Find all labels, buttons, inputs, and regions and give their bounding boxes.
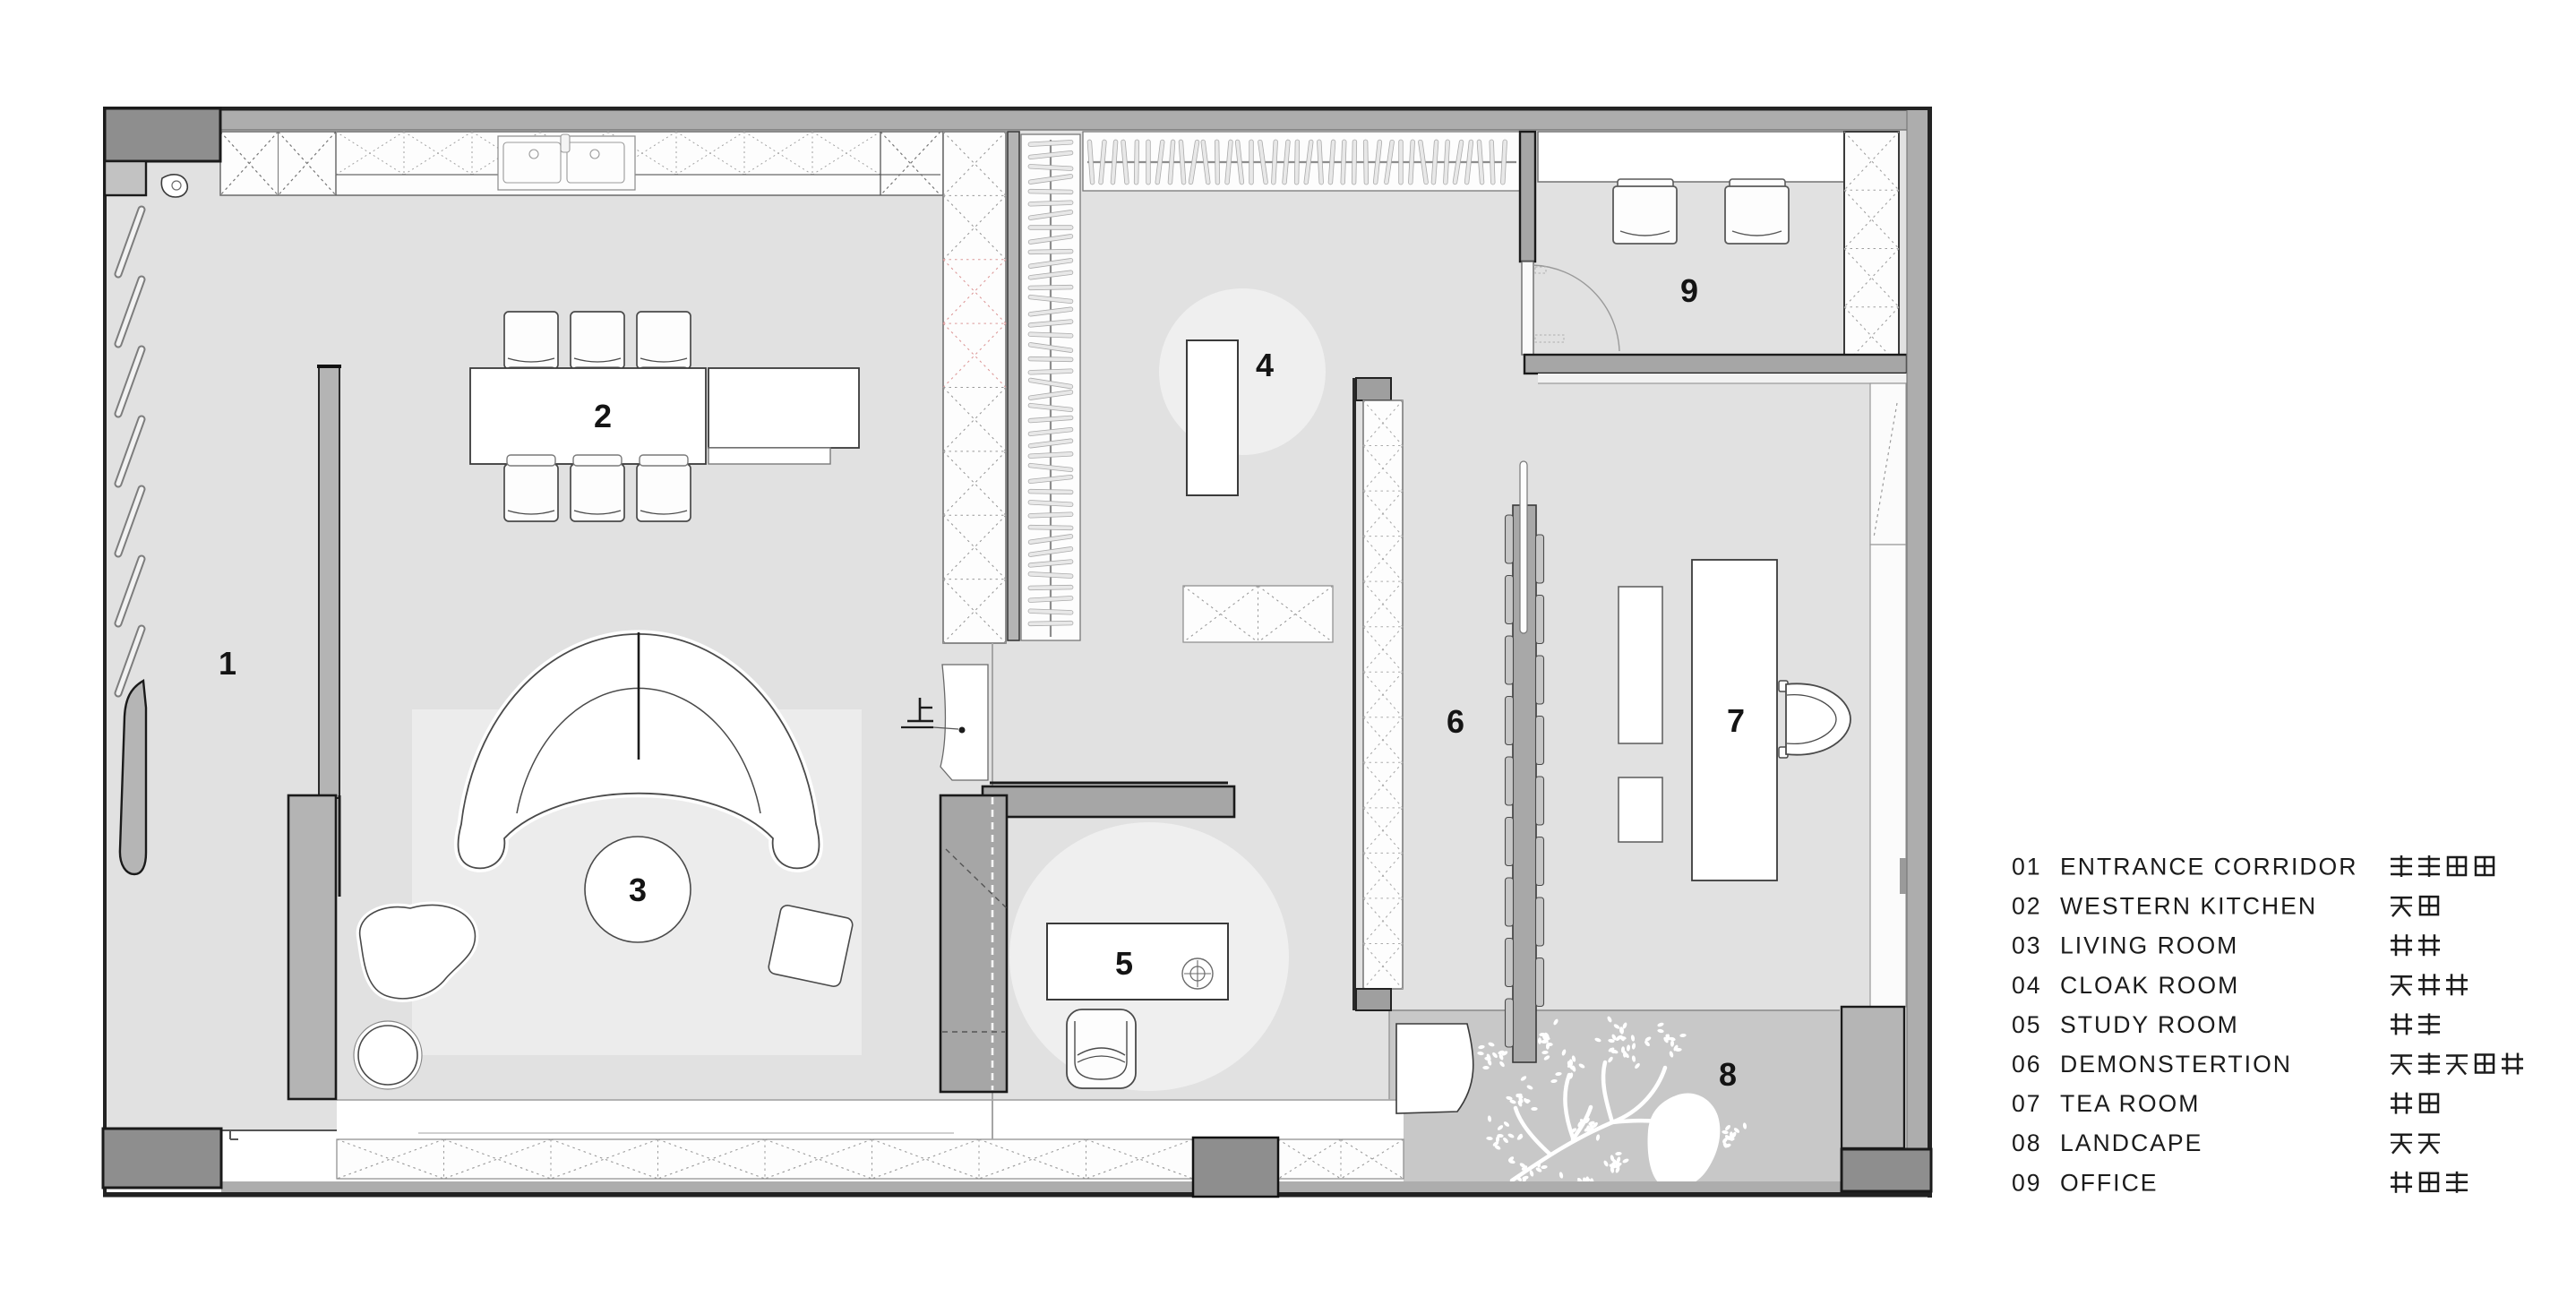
- svg-text:02: 02: [2012, 893, 2042, 920]
- svg-text:4: 4: [1256, 347, 1274, 383]
- svg-text:STUDY ROOM: STUDY ROOM: [2060, 1011, 2239, 1038]
- svg-text:3: 3: [629, 872, 647, 908]
- svg-text:01: 01: [2012, 854, 2042, 880]
- svg-text:04: 04: [2012, 972, 2042, 999]
- svg-text:5: 5: [1115, 945, 1133, 982]
- svg-text:9: 9: [1680, 272, 1698, 309]
- svg-text:ENTRANCE CORRIDOR: ENTRANCE CORRIDOR: [2060, 854, 2357, 880]
- svg-text:09: 09: [2012, 1169, 2042, 1196]
- svg-text:OFFICE: OFFICE: [2060, 1169, 2159, 1196]
- svg-text:DEMONSTERTION: DEMONSTERTION: [2060, 1051, 2292, 1078]
- svg-text:06: 06: [2012, 1051, 2042, 1078]
- svg-text:LIVING ROOM: LIVING ROOM: [2060, 932, 2238, 959]
- svg-text:8: 8: [1719, 1056, 1737, 1093]
- svg-text:CLOAK ROOM: CLOAK ROOM: [2060, 972, 2239, 999]
- svg-text:08: 08: [2012, 1129, 2042, 1156]
- svg-text:LANDCAPE: LANDCAPE: [2060, 1129, 2202, 1156]
- svg-text:2: 2: [594, 398, 612, 434]
- svg-text:WESTERN KITCHEN: WESTERN KITCHEN: [2060, 893, 2317, 920]
- svg-text:6: 6: [1447, 703, 1464, 740]
- svg-text:03: 03: [2012, 932, 2042, 959]
- svg-text:7: 7: [1727, 702, 1745, 739]
- svg-text:05: 05: [2012, 1011, 2042, 1038]
- svg-text:1: 1: [219, 645, 236, 682]
- svg-text:TEA ROOM: TEA ROOM: [2060, 1090, 2200, 1117]
- svg-text:07: 07: [2012, 1090, 2042, 1117]
